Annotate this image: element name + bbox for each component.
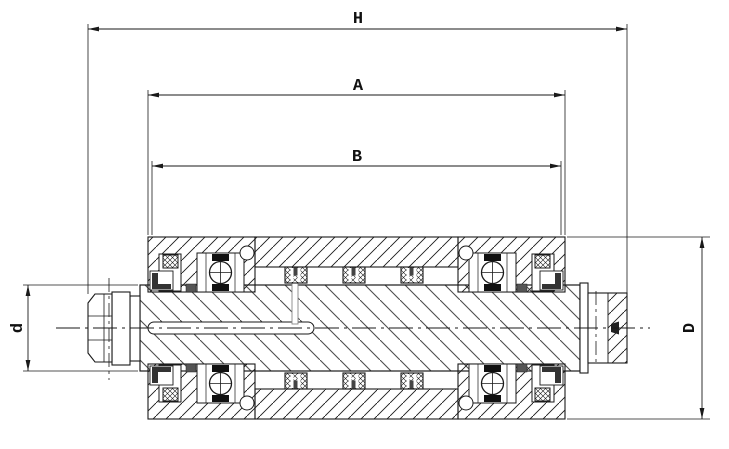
seal-ring — [163, 255, 178, 268]
race-shoulder — [212, 284, 229, 291]
cap-collar — [130, 296, 140, 361]
retainer-block — [186, 284, 196, 292]
bearing-assembly-drawing: H A B d D — [0, 0, 729, 449]
grease-passage — [292, 283, 298, 324]
cap-washer — [112, 292, 130, 365]
dim-label-roller-diameter: D — [681, 323, 700, 333]
dim-label-shaft-diameter: d — [9, 323, 28, 333]
drawing-canvas: H A B d D — [0, 0, 729, 449]
spacer-ring — [285, 267, 307, 283]
tube-wall-top — [255, 237, 458, 267]
pin-hole — [240, 246, 254, 260]
dim-label-tube-length: A — [353, 77, 364, 96]
race-shoulder — [212, 254, 229, 261]
left-end-cap — [88, 292, 140, 365]
tube-wall-bottom — [255, 389, 458, 419]
dim-label-overall-length: H — [353, 10, 363, 29]
dim-label-bearing-span: B — [352, 148, 362, 167]
